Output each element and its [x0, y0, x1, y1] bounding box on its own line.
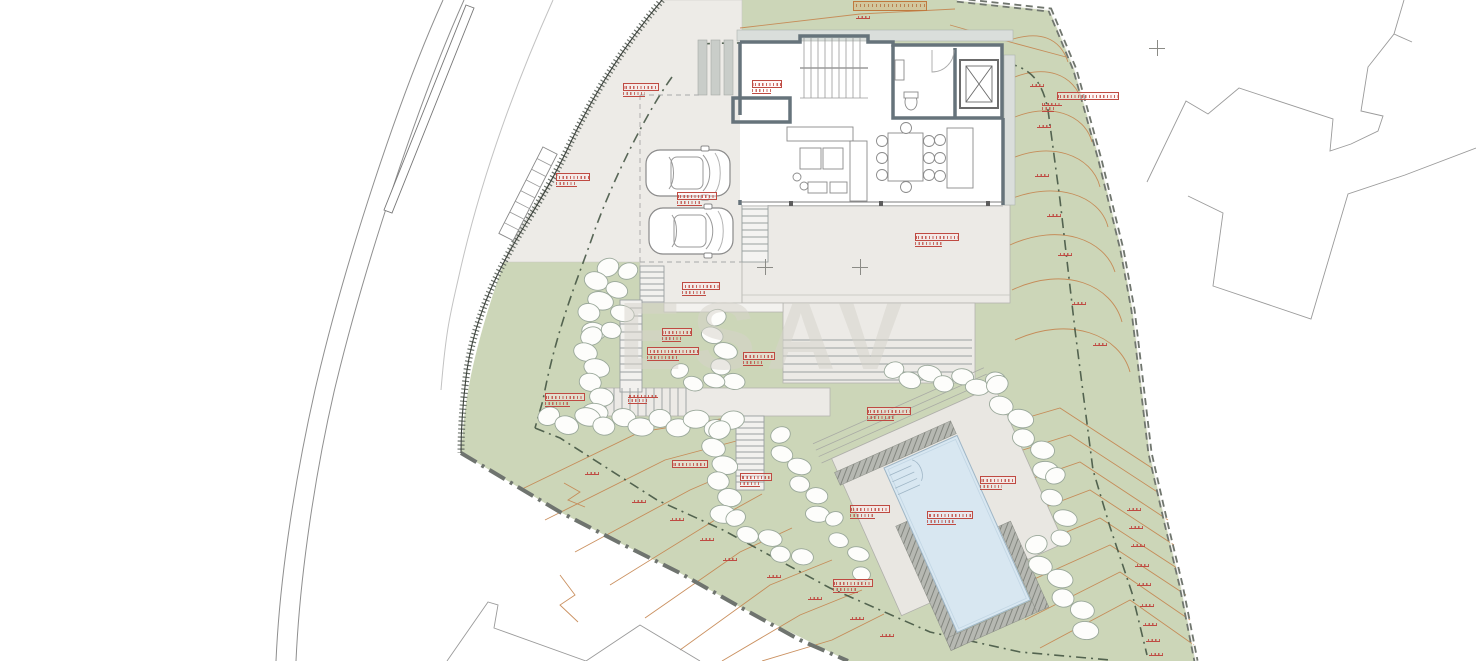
neighbour-building-northeast — [1147, 0, 1476, 319]
roof-canopy-east — [1004, 55, 1015, 205]
kitchen-island — [935, 128, 974, 188]
neighbour-building-southwest — [447, 602, 700, 661]
road-retaining-wall — [384, 5, 474, 213]
car — [646, 146, 730, 200]
roof-canopy-north — [737, 30, 1013, 41]
site-plan-svg — [0, 0, 1476, 661]
site-plan-stage: ESAV — [0, 0, 1476, 661]
car — [649, 204, 733, 258]
entry-pergola — [698, 40, 733, 95]
